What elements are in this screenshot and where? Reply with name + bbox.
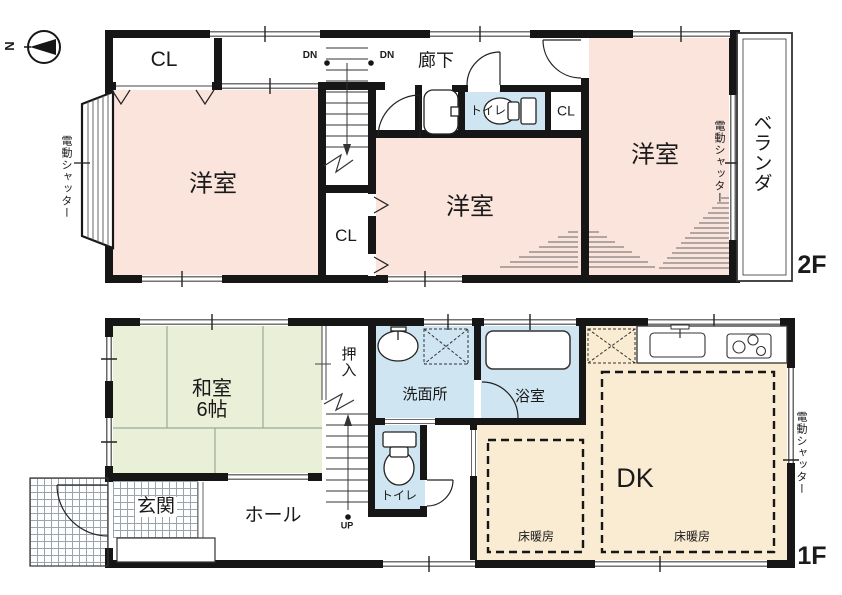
- refrigerator-icon: [588, 329, 635, 363]
- stairs-1f: [326, 414, 368, 520]
- porch-outline: [30, 478, 108, 566]
- sink-icon: [378, 327, 418, 361]
- hall-label: ホール: [244, 506, 301, 526]
- shutter-2f-right-label: 電動シャッター: [711, 120, 727, 204]
- compass-icon: [24, 31, 60, 63]
- stairs-2f: [324, 48, 374, 172]
- bedroom-middle-2f-label: 洋室: [446, 194, 494, 219]
- washing-machine-icon: [424, 329, 468, 364]
- japanese-room-size: 6帖: [192, 400, 232, 421]
- shutter-1f-right-label: 電動シャッター: [793, 411, 809, 495]
- bathtub-icon: [486, 331, 570, 369]
- kitchen-counter-icon: [637, 325, 787, 363]
- vanity-2f-icon: [424, 90, 459, 134]
- hatch-2f: [500, 198, 729, 268]
- floor1-tag: 1F: [797, 543, 826, 569]
- stairs-dn-right-label: DN: [380, 51, 394, 62]
- washroom-label: 洗面所: [402, 387, 447, 403]
- compass-north-label: N: [3, 41, 17, 50]
- stairs-up-label: UP: [341, 521, 354, 530]
- veranda-label: ベランダ: [748, 113, 775, 193]
- toilet-1f-label: トイレ: [381, 490, 417, 503]
- floor2-tag: 2F: [797, 252, 826, 278]
- bay-window: [74, 92, 113, 248]
- entrance-label: 玄関: [135, 497, 177, 517]
- closet-small-2f-label: CL: [557, 104, 575, 119]
- dk-label: DK: [616, 464, 654, 492]
- bedroom-left-2f-label: 洋室: [189, 171, 237, 196]
- closet-top-2f-label: CL: [151, 49, 178, 71]
- closet-mid-2f-label: CL: [335, 227, 357, 245]
- entrance-step: [117, 538, 215, 562]
- hallway-2f-label: 廊下: [418, 52, 454, 71]
- stairs-dn-left-label: DN: [303, 51, 317, 62]
- toilet-1f-icon: [383, 432, 416, 485]
- bathroom-label: 浴室: [515, 389, 545, 405]
- shutter-2f-left-label: 電動シャッター: [58, 135, 74, 219]
- floorplan: N CL DN DN 廊下 トイレ CL CL 洋室 洋室 洋室 ベランダ 電動…: [0, 0, 842, 595]
- toilet-2f-label: トイレ: [470, 105, 506, 118]
- floorplan-structure: [0, 0, 842, 595]
- floor-heating-right-label: 床暖房: [674, 531, 710, 544]
- oshiire-label: 押入: [338, 346, 359, 378]
- japanese-room-label: 和室 6帖: [192, 379, 232, 421]
- japanese-room-name: 和室: [192, 379, 232, 400]
- floor-heating-left-label: 床暖房: [518, 531, 554, 544]
- bedroom-right-2f-label: 洋室: [631, 142, 679, 167]
